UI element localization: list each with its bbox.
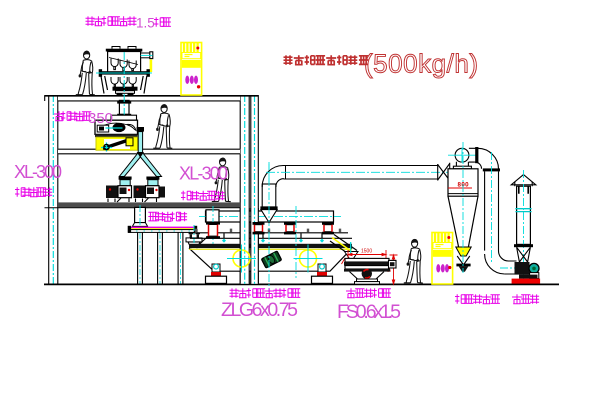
svg-text:ZLG6x0.75: ZLG6x0.75 [221,299,298,321]
svg-text:FS0.6x1.5: FS0.6x1.5 [337,301,401,323]
svg-text:XL-300: XL-300 [14,162,62,182]
svg-text:1500: 1500 [361,249,372,255]
svg-text:XL-300: XL-300 [179,164,228,184]
svg-text:350: 350 [88,110,113,127]
svg-text:(500kg/h): (500kg/h) [364,49,478,79]
svg-text:1.5: 1.5 [136,16,155,31]
